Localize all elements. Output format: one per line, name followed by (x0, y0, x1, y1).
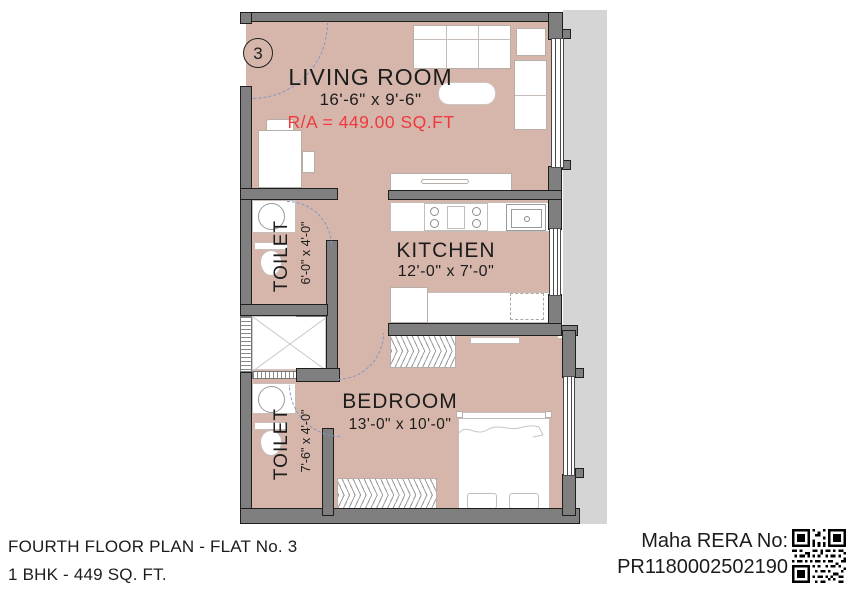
kitchen-sink (506, 204, 546, 231)
plan-title: FOURTH FLOOR PLAN - FLAT No. 3 (8, 537, 297, 557)
bedroom-label: BEDROOM (340, 390, 460, 414)
wall (240, 86, 252, 316)
wall (240, 12, 252, 24)
blanket-fold-line (459, 419, 549, 453)
qr-code-icon (792, 529, 846, 583)
burner (430, 207, 439, 216)
wardrobe-hatch (338, 479, 436, 495)
refrigerator (390, 287, 428, 323)
living-room-area: R/A = 449.00 SQ.FT (280, 112, 462, 133)
bedroom-shelf (470, 337, 520, 344)
stove-center (447, 206, 465, 229)
living-room-label: LIVING ROOM (283, 64, 458, 91)
duct-cross-icon (253, 317, 327, 371)
flat-number-badge: 3 (243, 38, 273, 68)
pillow (467, 493, 497, 509)
wall (296, 368, 340, 382)
toilet1-label: TOILET (271, 220, 293, 292)
burner (472, 219, 481, 228)
chaise-line (515, 95, 548, 96)
bed (458, 412, 550, 512)
wall (388, 190, 562, 200)
desk-side-unit (302, 151, 315, 173)
bedroom-window (563, 376, 575, 476)
duct (252, 316, 326, 370)
sink-drain (524, 216, 530, 222)
wall (243, 12, 563, 22)
toilet1-dims: 6'-0" x 4'-0" (299, 222, 313, 285)
duct-louver-left (240, 316, 252, 372)
toilet2-label: TOILET (271, 408, 293, 480)
wall (240, 372, 252, 524)
chaise-seat (514, 60, 547, 130)
gas-stove (424, 203, 488, 231)
bed-post (545, 411, 552, 418)
kitchen-platform (510, 293, 544, 320)
wall (322, 428, 334, 516)
wall (240, 188, 338, 200)
wall (240, 304, 328, 316)
side-table (516, 28, 546, 56)
wardrobe-bottom (337, 478, 437, 512)
pillow (509, 493, 539, 509)
sofa-divider (478, 26, 479, 70)
tv-unit (390, 173, 512, 191)
rera-number: PR1180002502190 (596, 556, 788, 579)
tv (421, 179, 469, 184)
window-jamb (575, 468, 584, 478)
living-room-window (551, 38, 564, 168)
kitchen-dims: 12'-0" x 7'-0" (387, 263, 505, 281)
duct-louver-bottom (252, 371, 297, 379)
window-jamb (575, 368, 584, 378)
bedroom-dims: 13'-0" x 10'-0" (340, 416, 460, 434)
wall (388, 323, 562, 336)
qr-code (792, 529, 846, 583)
kitchen-label: KITCHEN (387, 239, 505, 263)
rera-label: Maha RERA No: (600, 530, 788, 553)
kitchen-window (549, 228, 561, 296)
wardrobe-hatch (391, 351, 455, 367)
sofa (413, 25, 511, 69)
living-room-dims: 16'-6" x 9'-6" (283, 90, 458, 110)
sofa-back-line (414, 39, 512, 40)
burner (430, 219, 439, 228)
wall (562, 474, 576, 516)
wall (240, 508, 580, 524)
floor-plan-sheet: 3 LIVING ROOM 16'-6" x 9'-6" R/A = 449.0… (0, 0, 850, 600)
burner (472, 207, 481, 216)
toilet2-dims: 7'-6" x 4'-0" (299, 410, 313, 473)
wardrobe-hatch (391, 335, 455, 351)
wall (548, 12, 563, 40)
plan-subtitle: 1 BHK - 449 SQ. FT. (8, 565, 167, 585)
wall (562, 330, 576, 378)
study-desk (258, 130, 302, 188)
wardrobe-top (390, 334, 456, 368)
